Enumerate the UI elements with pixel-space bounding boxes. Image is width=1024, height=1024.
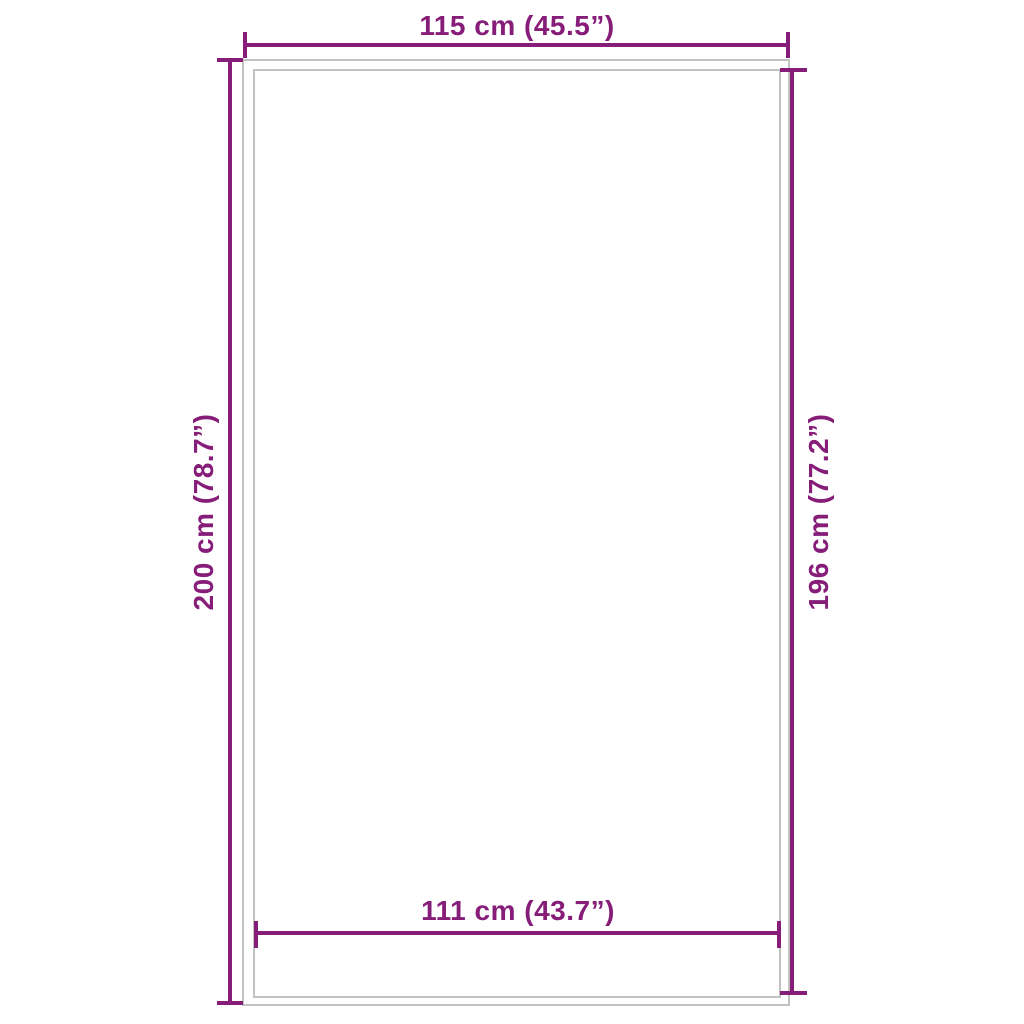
dimension-label-top-width: 115 cm (45.5”)	[419, 12, 614, 40]
dimension-line-right	[790, 68, 794, 995]
dimension-line-top	[244, 43, 790, 47]
dimension-line-left	[228, 58, 232, 1005]
dimension-cap-left-top	[217, 58, 243, 62]
dimension-cap-left-bottom	[217, 1001, 243, 1005]
dimension-line-bottom	[255, 931, 781, 935]
dimension-tick-bottom-right	[777, 921, 781, 948]
dimension-tick-top-left	[243, 32, 247, 58]
dimension-tick-top-right	[786, 32, 790, 58]
dimension-label-bottom-width: 111 cm (43.7”)	[421, 897, 615, 925]
dimension-label-left-height: 200 cm (78.7”)	[190, 414, 218, 611]
dimension-cap-right-bottom	[780, 991, 807, 995]
product-outline-inner	[253, 69, 781, 998]
dimension-diagram: 115 cm (45.5”) 111 cm (43.7”) 200 cm (78…	[0, 0, 1024, 1024]
dimension-tick-bottom-left	[254, 921, 258, 948]
dimension-label-right-height: 196 cm (77.2”)	[805, 414, 833, 611]
dimension-cap-right-top	[780, 68, 807, 72]
